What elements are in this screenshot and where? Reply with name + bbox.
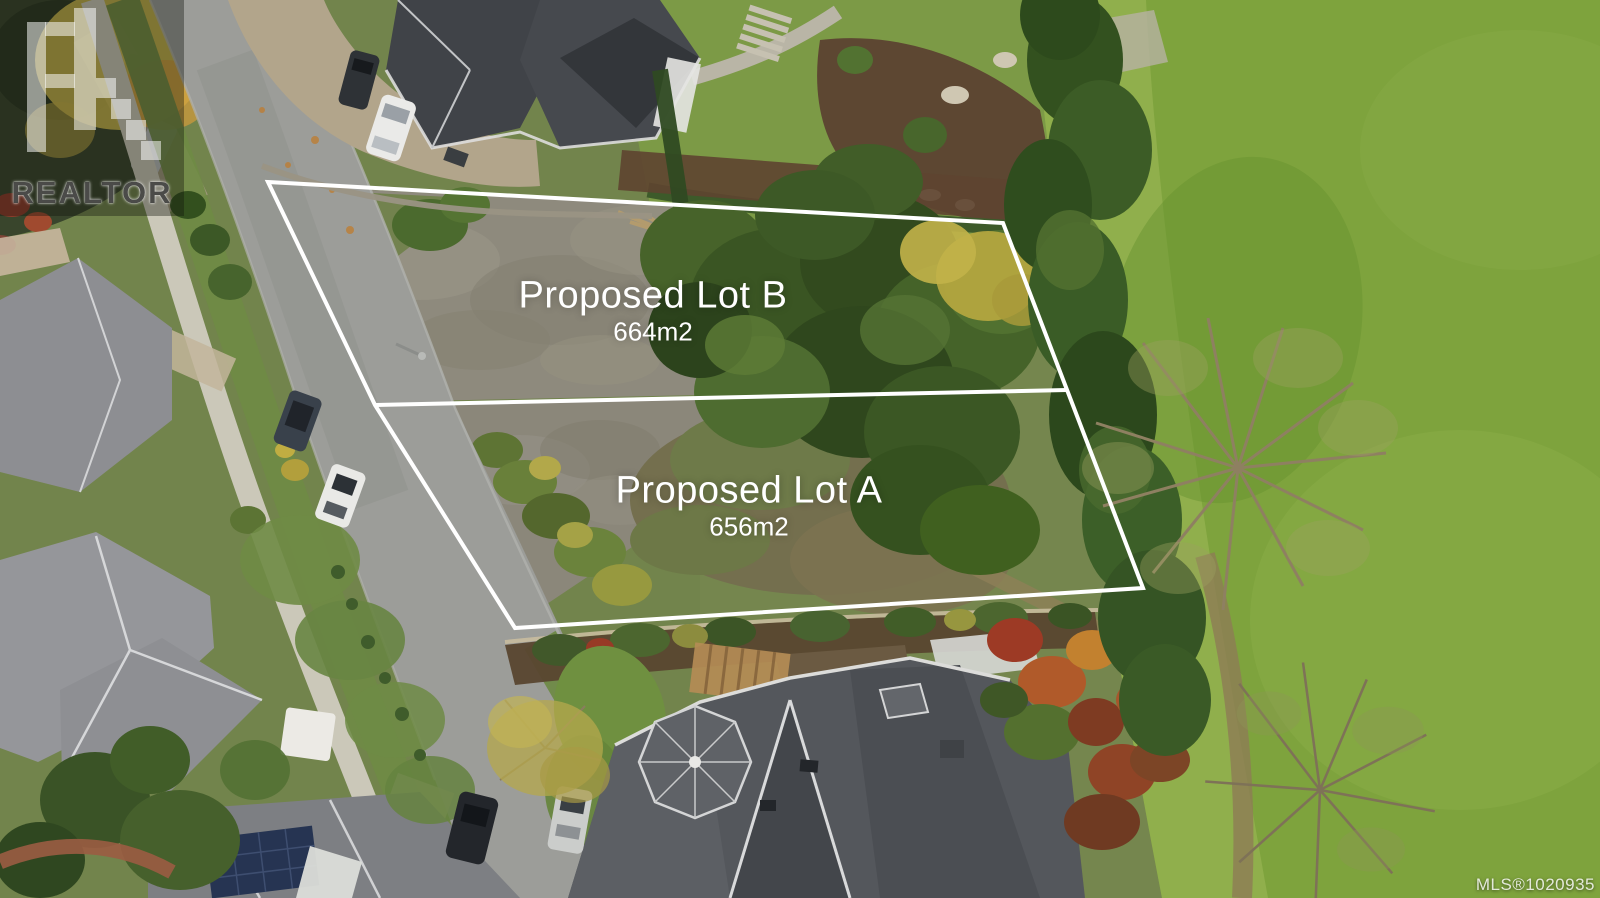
rv-trailer	[280, 707, 336, 761]
chimney	[940, 740, 964, 758]
mls-number: MLS®1020935	[1476, 875, 1595, 895]
realtor-logo-icon	[0, 0, 184, 160]
realtor-watermark-text: REALTOR	[0, 175, 184, 211]
aerial-photo	[0, 0, 1600, 898]
dormer	[880, 684, 928, 718]
turret	[639, 706, 751, 818]
aerial-photo-page: Proposed Lot B 664m2 Proposed Lot A 656m…	[0, 0, 1600, 898]
realtor-watermark: REALTOR	[0, 0, 184, 216]
